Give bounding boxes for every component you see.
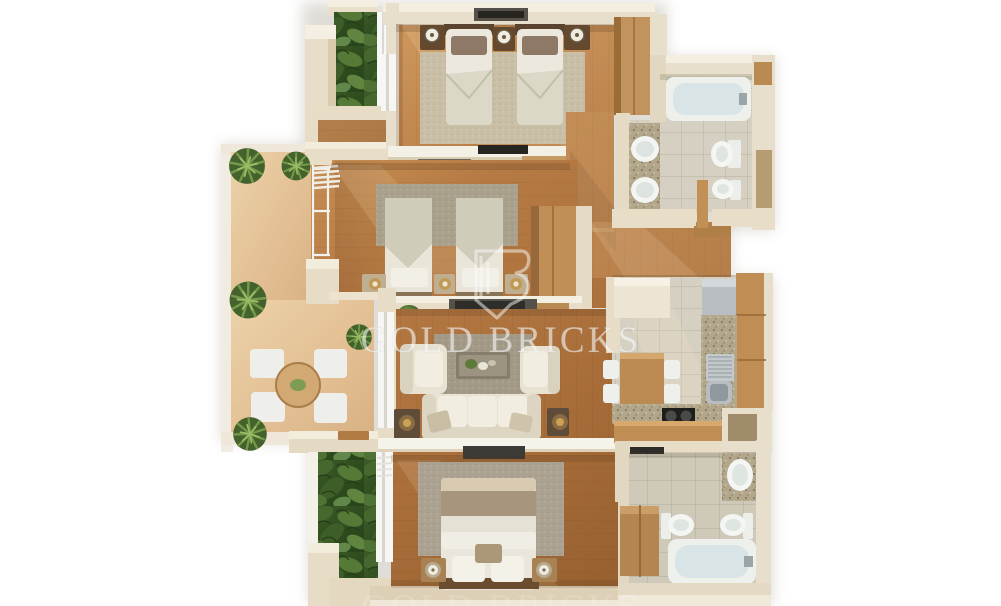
svg-text:GOLD BRICKS: GOLD BRICKS: [361, 588, 642, 606]
svg-text:GOLD BRICKS: GOLD BRICKS: [361, 320, 642, 361]
